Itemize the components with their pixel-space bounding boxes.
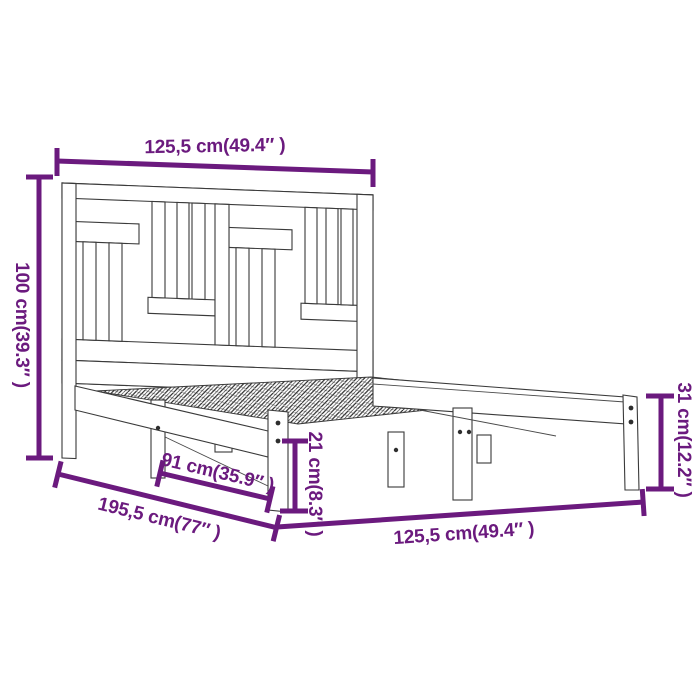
screw-icon — [156, 426, 160, 430]
diagram-canvas: 125,5 cm(49.4″ ) 100 cm(39.3″ ) 31 cm(12… — [0, 0, 700, 700]
headboard-band — [229, 227, 292, 249]
dimension-headboard-height: 100 cm(39.3″ ) — [11, 177, 53, 458]
bed-frame-drawing — [62, 183, 639, 512]
dimension-foot-height: 31 cm(12.2″ ) — [646, 382, 694, 497]
headboard-slat — [83, 242, 96, 340]
screw-icon — [629, 420, 634, 425]
headboard-slat — [341, 209, 353, 305]
leg-mid-a — [388, 432, 404, 487]
dimension-tick — [55, 461, 61, 487]
leg-mid-b — [453, 408, 472, 500]
headboard-band — [76, 222, 139, 244]
dimension-tick — [642, 489, 644, 516]
headboard-slat — [236, 248, 249, 346]
headboard-slat — [177, 202, 189, 298]
headboard-center-stile — [215, 204, 229, 346]
headboard-right-post — [357, 194, 373, 392]
screw-icon — [467, 430, 471, 434]
headboard-slat — [262, 249, 275, 347]
screw-icon — [276, 439, 281, 444]
screw-icon — [629, 406, 634, 411]
headboard-slat — [152, 201, 165, 297]
headboard-slat — [192, 203, 205, 299]
headboard-band — [301, 303, 357, 321]
dimension-label-base-height: 21 cm(8.3″ ) — [304, 432, 325, 537]
headboard-band — [148, 297, 215, 316]
dimension-line — [57, 161, 373, 172]
bed-dimension-diagram: 125,5 cm(49.4″ ) 100 cm(39.3″ ) 31 cm(12… — [0, 0, 700, 700]
dimension-label-foot-height: 31 cm(12.2″ ) — [673, 382, 694, 497]
screw-icon — [458, 430, 462, 434]
leg-mid-c — [477, 435, 491, 463]
screw-icon — [394, 448, 398, 452]
headboard-left-post-leg — [62, 183, 76, 459]
dimension-label-bottom-width: 125,5 cm(49.4″ ) — [393, 519, 535, 550]
screw-icon — [276, 421, 281, 426]
headboard-slat — [109, 243, 122, 341]
dimension-top-width: 125,5 cm(49.4″ ) — [57, 135, 373, 187]
dimension-label-headboard-height: 100 cm(39.3″ ) — [11, 262, 32, 388]
dimension-label-top-width: 125,5 cm(49.4″ ) — [144, 135, 285, 158]
headboard-slat — [305, 207, 317, 303]
headboard-slat — [326, 208, 338, 304]
side-rail-right — [373, 378, 627, 424]
